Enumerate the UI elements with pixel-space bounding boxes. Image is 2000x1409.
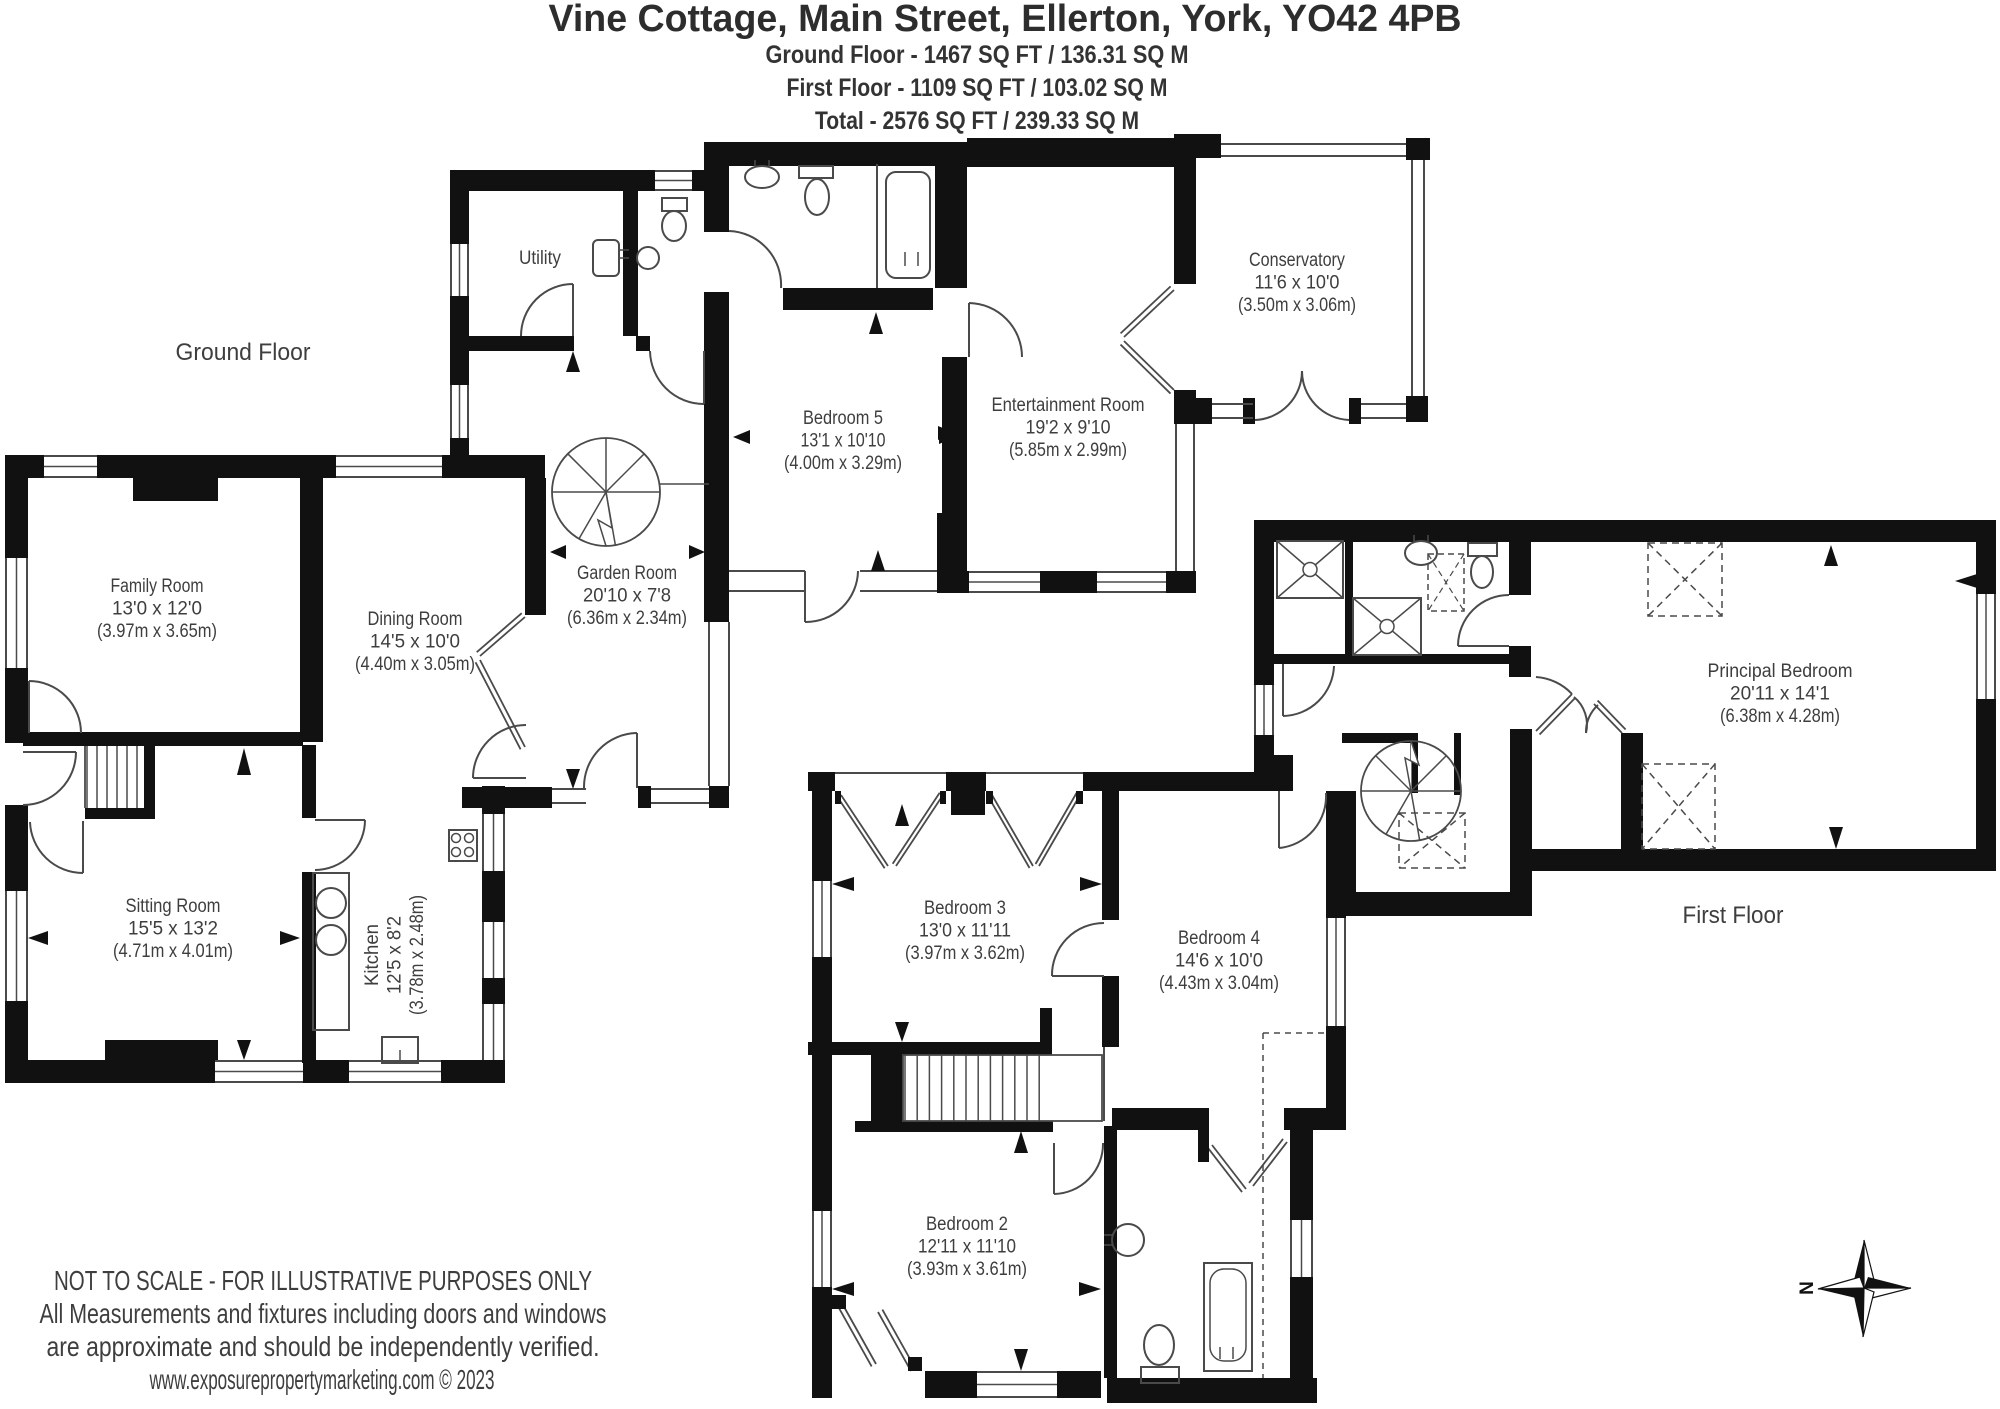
svg-text:20'11 x 14'1: 20'11 x 14'1 — [1730, 684, 1830, 705]
svg-text:11'6 x 10'0: 11'6 x 10'0 — [1255, 273, 1340, 294]
svg-text:Vine Cottage, Main Street, Ell: Vine Cottage, Main Street, Ellerton, Yor… — [549, 0, 1462, 40]
svg-text:(4.71m x 4.01m): (4.71m x 4.01m) — [113, 941, 233, 962]
svg-text:Ground Floor: Ground Floor — [176, 339, 311, 366]
svg-text:13'1 x 10'10: 13'1 x 10'10 — [801, 431, 886, 452]
svg-text:www.exposurepropertymarketing.: www.exposurepropertymarketing.com © 2023 — [149, 1364, 495, 1395]
svg-text:(3.50m x 3.06m): (3.50m x 3.06m) — [1238, 295, 1356, 316]
svg-text:Garden Room: Garden Room — [577, 563, 677, 584]
svg-text:19'2 x 9'10: 19'2 x 9'10 — [1026, 418, 1111, 439]
svg-text:N: N — [1797, 1281, 1818, 1295]
svg-text:(3.78m x 2.48m): (3.78m x 2.48m) — [407, 895, 428, 1015]
svg-text:20'10 x 7'8: 20'10 x 7'8 — [583, 586, 671, 607]
svg-text:Bedroom 2: Bedroom 2 — [926, 1214, 1008, 1235]
svg-text:(6.38m x 4.28m): (6.38m x 4.28m) — [1720, 706, 1840, 727]
svg-text:13'0 x 12'0: 13'0 x 12'0 — [112, 599, 202, 620]
svg-text:Bedroom 5: Bedroom 5 — [803, 408, 883, 429]
svg-text:(4.40m x 3.05m): (4.40m x 3.05m) — [355, 654, 475, 675]
svg-text:are approximate and should be: are approximate and should be independen… — [47, 1331, 600, 1362]
svg-text:First Floor - 1109 SQ FT / 103: First Floor - 1109 SQ FT / 103.02 SQ M — [787, 74, 1168, 102]
svg-text:(3.93m x 3.61m): (3.93m x 3.61m) — [907, 1259, 1027, 1280]
svg-text:NOT TO SCALE - FOR ILLUSTRATIV: NOT TO SCALE - FOR ILLUSTRATIVE PURPOSES… — [54, 1265, 592, 1296]
svg-text:All Measurements and fixtures: All Measurements and fixtures including … — [40, 1298, 607, 1329]
svg-text:Bedroom 4: Bedroom 4 — [1178, 928, 1260, 949]
svg-text:14'5 x 10'0: 14'5 x 10'0 — [370, 632, 460, 653]
svg-text:Utility: Utility — [519, 248, 561, 269]
svg-text:Total - 2576 SQ FT / 239.33 SQ: Total - 2576 SQ FT / 239.33 SQ M — [815, 107, 1139, 135]
svg-text:13'0 x 11'11: 13'0 x 11'11 — [919, 921, 1011, 942]
svg-text:15'5 x 13'2: 15'5 x 13'2 — [128, 919, 218, 940]
svg-text:(4.00m x 3.29m): (4.00m x 3.29m) — [784, 453, 902, 474]
svg-text:(5.85m x 2.99m): (5.85m x 2.99m) — [1009, 440, 1127, 461]
svg-text:14'6 x 10'0: 14'6 x 10'0 — [1175, 951, 1263, 972]
svg-text:(3.97m x 3.62m): (3.97m x 3.62m) — [905, 943, 1025, 964]
svg-text:First Floor: First Floor — [1683, 902, 1784, 929]
svg-text:Conservatory: Conservatory — [1249, 250, 1345, 271]
svg-text:Principal Bedroom: Principal Bedroom — [1708, 661, 1853, 682]
svg-text:Family Room: Family Room — [111, 576, 204, 597]
svg-text:Entertainment Room: Entertainment Room — [992, 395, 1145, 416]
svg-text:Dining Room: Dining Room — [368, 609, 463, 630]
svg-text:Ground Floor - 1467 SQ FT / 13: Ground Floor - 1467 SQ FT / 136.31 SQ M — [766, 41, 1189, 69]
svg-text:Kitchen: Kitchen — [362, 924, 383, 986]
svg-text:(6.36m x 2.34m): (6.36m x 2.34m) — [567, 608, 687, 629]
svg-text:Bedroom 3: Bedroom 3 — [924, 898, 1006, 919]
svg-text:(3.97m x 3.65m): (3.97m x 3.65m) — [97, 621, 217, 642]
svg-text:Sitting Room: Sitting Room — [126, 896, 221, 917]
svg-text:12'5 x 8'2: 12'5 x 8'2 — [385, 916, 406, 994]
svg-text:12'11 x 11'10: 12'11 x 11'10 — [918, 1237, 1016, 1258]
svg-text:(4.43m x 3.04m): (4.43m x 3.04m) — [1159, 973, 1279, 994]
